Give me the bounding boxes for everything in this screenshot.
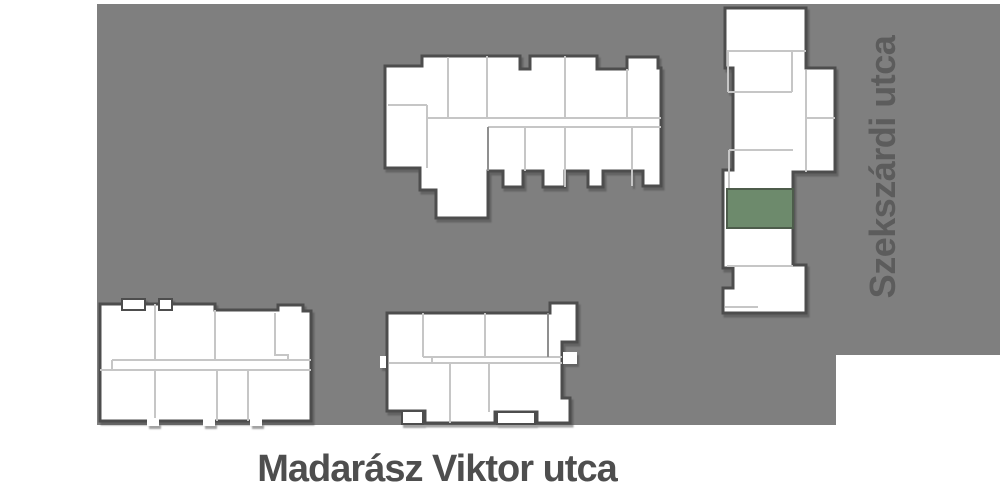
building-bottom-left-roof-notch <box>122 299 145 310</box>
highlighted-unit[interactable] <box>727 189 793 228</box>
entrance-mark <box>563 352 577 364</box>
entrance-mark <box>250 418 262 426</box>
street-label-bottom: Madarász Viktor utca <box>257 448 618 490</box>
site-plan-map: Madarász Viktor utca Szekszárdi utca <box>0 0 1000 500</box>
stair-exit-tab <box>497 412 535 424</box>
street-label-right: Szekszárdi utca <box>862 34 903 298</box>
entrance-mark <box>147 418 159 426</box>
building-bottom-left-outline[interactable] <box>100 304 311 421</box>
site-plan-page: Madarász Viktor utca Szekszárdi utca <box>0 0 1000 500</box>
entrance-mark <box>380 356 386 368</box>
stair-exit-tab <box>402 411 423 424</box>
building-bottom-middle[interactable] <box>380 303 577 424</box>
building-bottom-left[interactable] <box>100 299 311 426</box>
entrance-mark <box>203 418 215 426</box>
building-bottom-left-roof-notch <box>159 299 172 310</box>
